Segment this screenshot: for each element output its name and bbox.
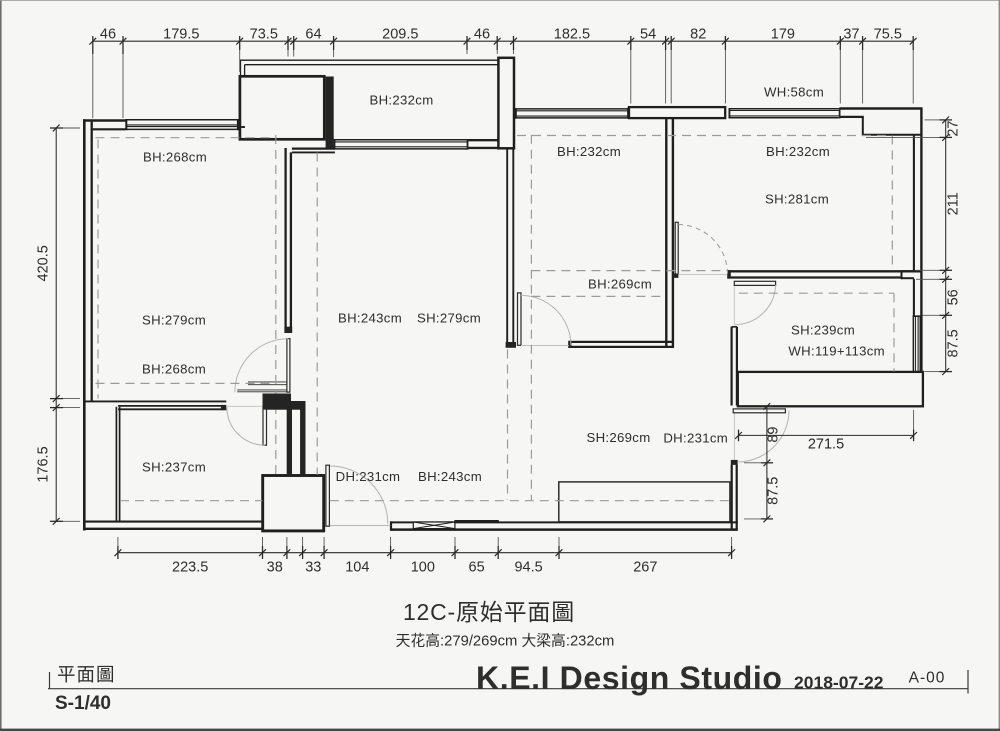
- svg-text:33: 33: [305, 560, 321, 576]
- svg-text:182.5: 182.5: [554, 27, 590, 43]
- svg-text:223.5: 223.5: [172, 560, 208, 576]
- svg-text:SH:269cm: SH:269cm: [587, 430, 651, 445]
- svg-text:87.5: 87.5: [946, 329, 962, 357]
- svg-text:211: 211: [946, 192, 962, 215]
- svg-text:12C-原始平面圖: 12C-原始平面圖: [403, 599, 575, 625]
- svg-text:65: 65: [469, 560, 485, 576]
- svg-text:54: 54: [640, 27, 656, 43]
- svg-text:BH:268cm: BH:268cm: [142, 362, 206, 377]
- svg-text:27: 27: [946, 121, 962, 137]
- svg-text:104: 104: [345, 560, 369, 576]
- svg-text:SH:237cm: SH:237cm: [142, 460, 206, 475]
- svg-text:89: 89: [766, 427, 782, 443]
- svg-text:WH:58cm: WH:58cm: [764, 85, 824, 100]
- svg-text:179.5: 179.5: [163, 27, 199, 43]
- svg-text:267: 267: [633, 560, 657, 576]
- svg-text:56: 56: [946, 289, 962, 305]
- svg-text:S-1/40: S-1/40: [55, 693, 111, 714]
- svg-text:94.5: 94.5: [514, 560, 542, 576]
- svg-text:天花高:279/269cm 大梁高:232cm: 天花高:279/269cm 大梁高:232cm: [396, 633, 615, 650]
- svg-text:73.5: 73.5: [250, 27, 278, 43]
- svg-text:DH:231cm: DH:231cm: [336, 469, 401, 484]
- svg-text:179: 179: [771, 27, 795, 43]
- svg-text:82: 82: [690, 27, 706, 43]
- svg-text:SH:279cm: SH:279cm: [417, 311, 481, 326]
- svg-text:176.5: 176.5: [36, 446, 52, 482]
- svg-text:BH:232cm: BH:232cm: [370, 93, 434, 108]
- svg-text:420.5: 420.5: [36, 245, 52, 281]
- svg-text:BH:243cm: BH:243cm: [338, 311, 402, 326]
- svg-text:271.5: 271.5: [808, 437, 844, 453]
- svg-text:DH:231cm: DH:231cm: [663, 431, 728, 446]
- svg-text:38: 38: [267, 560, 283, 576]
- svg-text:BH:243cm: BH:243cm: [418, 469, 482, 484]
- svg-text:75.5: 75.5: [874, 27, 902, 43]
- svg-text:BH:269cm: BH:269cm: [588, 277, 652, 292]
- svg-text:46: 46: [100, 27, 116, 43]
- svg-text:A-00: A-00: [909, 670, 946, 687]
- svg-text:64: 64: [305, 27, 321, 43]
- svg-text:WH:119+113cm: WH:119+113cm: [788, 344, 885, 359]
- svg-text:100: 100: [411, 560, 435, 576]
- svg-text:87.5: 87.5: [766, 477, 782, 505]
- svg-text:K.E.I Design Studio: K.E.I Design Studio: [476, 660, 783, 696]
- svg-text:2018-07-22: 2018-07-22: [794, 673, 884, 693]
- svg-text:BH:268cm: BH:268cm: [143, 150, 207, 165]
- svg-text:SH:239cm: SH:239cm: [791, 323, 855, 338]
- svg-text:平面圖: 平面圖: [57, 664, 116, 685]
- svg-text:46: 46: [474, 27, 490, 43]
- svg-text:SH:279cm: SH:279cm: [142, 313, 206, 328]
- svg-text:BH:232cm: BH:232cm: [557, 144, 621, 159]
- svg-text:37: 37: [843, 27, 859, 43]
- svg-text:SH:281cm: SH:281cm: [765, 192, 829, 207]
- svg-text:BH:232cm: BH:232cm: [766, 144, 830, 159]
- svg-text:209.5: 209.5: [382, 27, 418, 43]
